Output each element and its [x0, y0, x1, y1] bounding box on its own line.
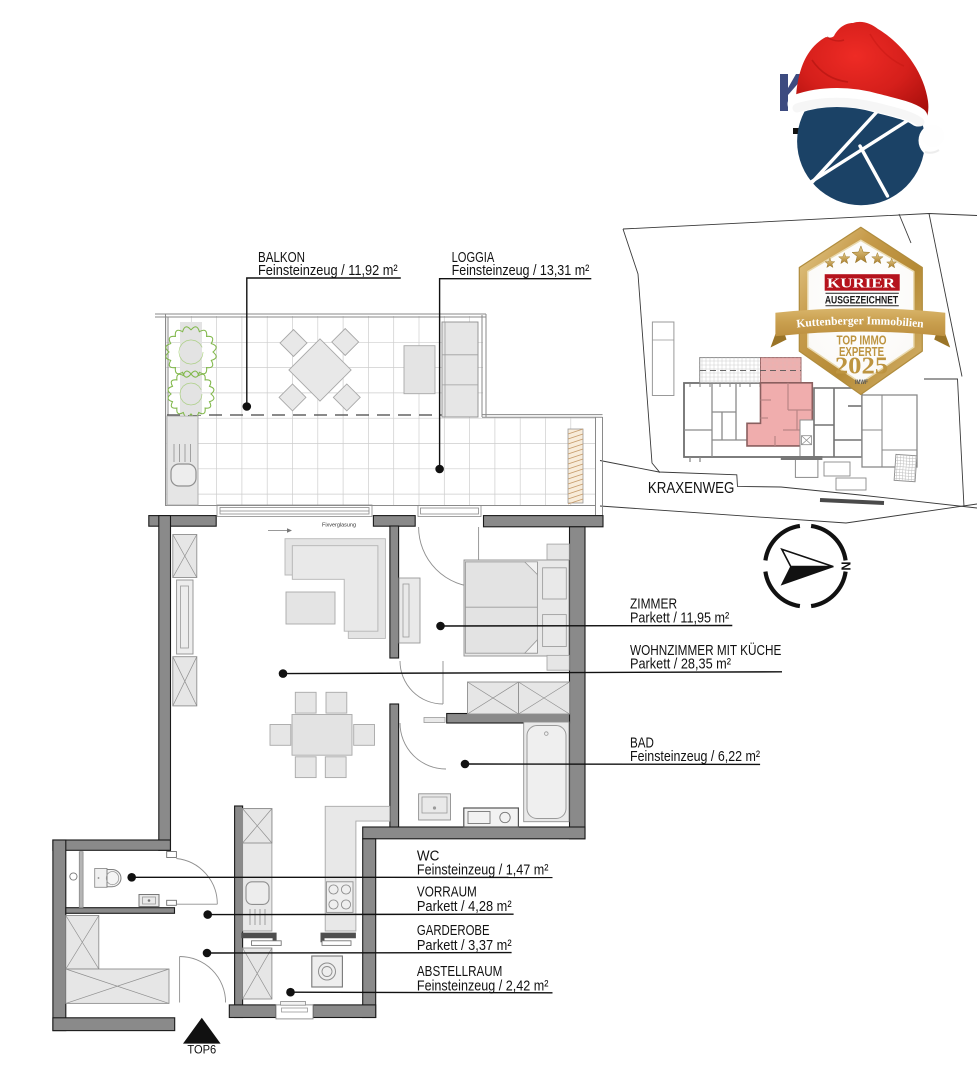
svg-text:KURIER: KURIER: [827, 276, 896, 291]
svg-text:Feinsteinzeug / 6,22 m²: Feinsteinzeug / 6,22 m²: [630, 748, 760, 765]
svg-text:Parkett / 28,35 m²: Parkett / 28,35 m²: [630, 656, 731, 673]
svg-text:TOP6: TOP6: [187, 1043, 216, 1057]
svg-text:Fixverglasung: Fixverglasung: [322, 523, 356, 529]
svg-text:Feinsteinzeug / 11,92 m²: Feinsteinzeug / 11,92 m²: [258, 262, 398, 279]
svg-text:KRAXENWEG: KRAXENWEG: [648, 480, 735, 497]
svg-text:Parkett / 3,37 m²: Parkett / 3,37 m²: [417, 937, 512, 954]
svg-text:IMWF: IMWF: [855, 379, 868, 386]
svg-text:Feinsteinzeug / 2,42 m²: Feinsteinzeug / 2,42 m²: [417, 977, 549, 994]
svg-text:N: N: [839, 561, 853, 570]
svg-text:AUSGEZEICHNET: AUSGEZEICHNET: [825, 295, 899, 307]
svg-text:Parkett / 11,95 m²: Parkett / 11,95 m²: [630, 610, 729, 627]
svg-text:Parkett / 4,28 m²: Parkett / 4,28 m²: [417, 898, 512, 915]
svg-text:Feinsteinzeug / 1,47 m²: Feinsteinzeug / 1,47 m²: [417, 862, 549, 879]
svg-text:2025: 2025: [835, 354, 888, 380]
svg-text:Feinsteinzeug / 13,31 m²: Feinsteinzeug / 13,31 m²: [452, 262, 590, 279]
